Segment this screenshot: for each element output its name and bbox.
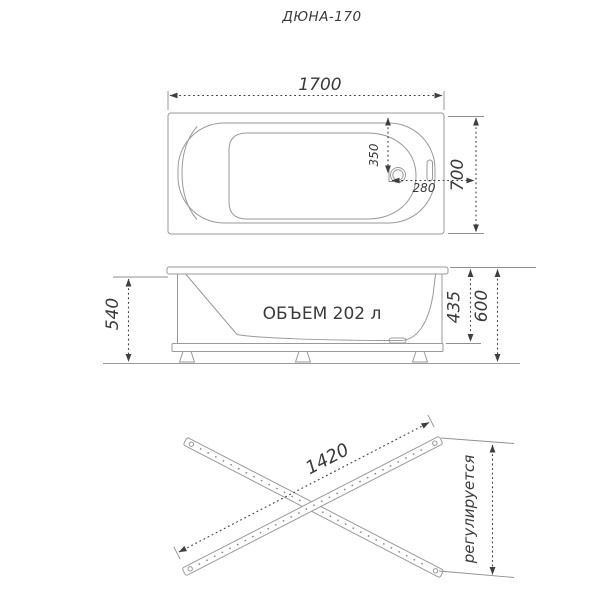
dim-label-600: 600 [472,290,492,322]
dim-label-adjustable: регулируется [460,455,478,564]
top-view-back-slope-arc [182,127,197,220]
side-view-rim-bar [167,267,448,274]
dim-height-540: 540 [103,277,168,362]
dim-total-height-600: 600 [472,270,498,362]
dim-label-700: 700 [448,159,468,191]
drain-inner-circle [393,170,403,180]
dim-length-1700: 1700 [168,75,444,110]
dim-label-350: 350 [367,143,381,166]
volume-label: ОБЪЕМ 202 л [263,304,382,324]
side-view-base-frame [172,344,443,352]
drawing-title: ДЮНА-170 [281,9,361,25]
top-view-tub-rim [178,123,435,223]
top-view [168,113,444,234]
dim-rail-length-1420: 1420 [174,415,434,559]
dim-adjustable: регулируется [439,438,514,578]
dim-label-1420: 1420 [302,439,352,479]
bathtub-technical-drawing: ДЮНА-170 1700 700 350 280 [0,0,600,600]
dim-label-1700: 1700 [298,75,341,95]
dim-drain-350: 350 [367,118,388,173]
side-view-foot-middle [296,352,311,363]
drawing-svg: ДЮНА-170 1700 700 350 280 [0,0,600,600]
dim-width-700: 700 [448,117,484,234]
overflow-slot [427,160,433,181]
dim-label-280: 280 [413,181,436,195]
frame-view: 1420 регулируется [174,415,514,578]
side-view-foot-right [413,352,428,363]
dim-label-435: 435 [445,291,465,323]
side-view-foot-left [180,352,195,363]
dim-label-540: 540 [103,298,123,330]
